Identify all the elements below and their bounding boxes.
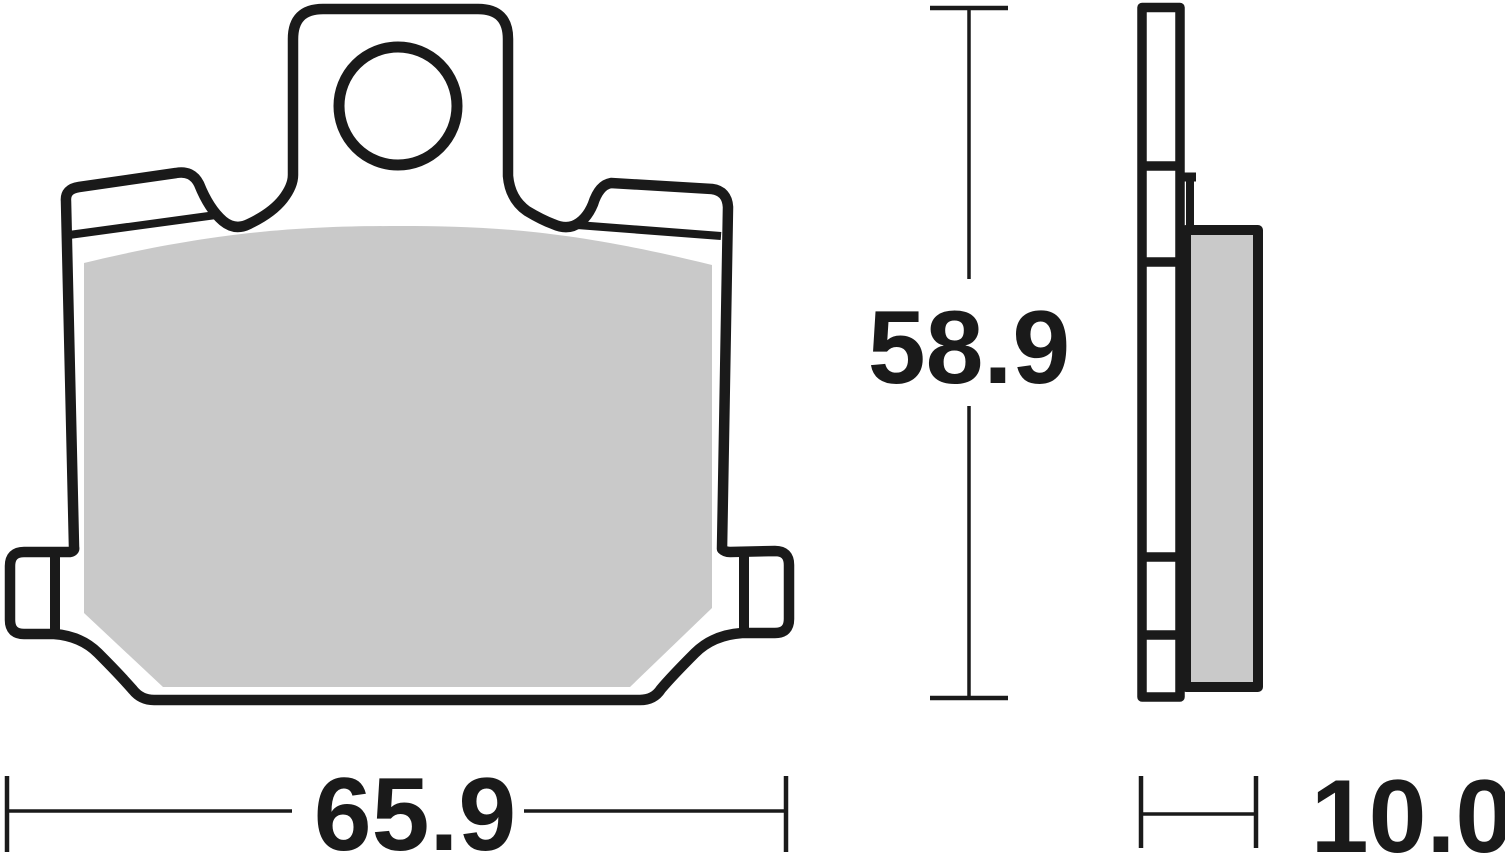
friction-material-side: [1186, 230, 1258, 687]
thickness-dimension-value: 10.0: [1311, 759, 1505, 854]
drawing-canvas: 65.9 58.9 10.0: [0, 0, 1505, 854]
height-dimension-value: 58.9: [868, 290, 1070, 406]
side-view: [1138, 8, 1259, 698]
left-ear-inner-line: [69, 215, 216, 235]
height-dimension: 58.9: [868, 8, 1070, 698]
brake-pad-technical-drawing: 65.9 58.9 10.0: [0, 0, 1505, 854]
mounting-hole: [339, 47, 457, 165]
right-ear-inner-line: [577, 225, 721, 236]
backing-plate-side: [1142, 8, 1180, 698]
width-dimension-value: 65.9: [314, 757, 516, 854]
thickness-dimension: 10.0: [1141, 759, 1505, 854]
friction-material-front: [84, 226, 712, 687]
width-dimension: 65.9: [7, 757, 786, 854]
front-view: [10, 9, 789, 700]
